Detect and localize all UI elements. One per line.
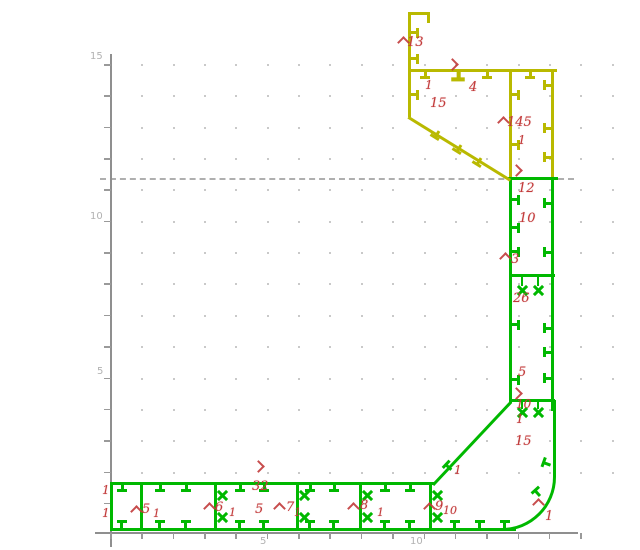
grid-dot xyxy=(580,283,582,285)
grid-dot xyxy=(361,346,363,348)
grid-dot xyxy=(424,95,426,97)
grid-dot xyxy=(455,315,457,317)
annotation-arrow-right xyxy=(252,460,265,473)
grid-dot xyxy=(392,378,394,380)
annotation-number: 3 xyxy=(511,253,519,266)
grid-dot xyxy=(486,315,488,317)
x-axis-tick xyxy=(329,533,331,539)
grid-dot xyxy=(329,440,331,442)
grid-dot xyxy=(173,440,175,442)
grid-dot xyxy=(204,283,206,285)
stiffener-tick xyxy=(511,195,521,205)
grid-dot xyxy=(267,189,269,191)
cross-symbol xyxy=(532,406,545,419)
grid-dot xyxy=(204,221,206,223)
grid-dot xyxy=(204,95,206,97)
stiffener-tick xyxy=(380,483,390,493)
grid-dot xyxy=(392,315,394,317)
grid-dot xyxy=(580,472,582,474)
stiffener-tick xyxy=(500,519,510,529)
tick-cap xyxy=(525,76,535,79)
annotation-number: 10 xyxy=(516,398,531,410)
stiffener-tick xyxy=(405,483,415,493)
grid-dot xyxy=(518,64,520,66)
grid-dot xyxy=(267,221,269,223)
tick-cap xyxy=(500,521,510,524)
grid-dot xyxy=(612,346,614,348)
grid-dot xyxy=(298,158,300,160)
grid-dot xyxy=(361,189,363,191)
grid-dot xyxy=(173,409,175,411)
tick-cap xyxy=(544,323,547,333)
x-axis-tick xyxy=(392,533,394,539)
stiffener-tick xyxy=(117,519,127,529)
annotation-number: 145 xyxy=(507,116,532,129)
tick-cap xyxy=(380,521,390,524)
waterline-dashed-line xyxy=(100,178,574,180)
stiffener-tick xyxy=(525,70,535,80)
grid-dot xyxy=(235,283,237,285)
grid-dot xyxy=(173,252,175,254)
tick-cap xyxy=(117,521,127,524)
grid-dot xyxy=(329,127,331,129)
y-axis-tick xyxy=(104,409,111,411)
annotation-number: 5 xyxy=(255,503,263,516)
tick-cap xyxy=(235,489,245,492)
grid-dot xyxy=(612,189,614,191)
grid-dot xyxy=(329,346,331,348)
grid-dot xyxy=(141,440,143,442)
grid-dot xyxy=(173,189,175,191)
grid-dot xyxy=(612,95,614,97)
tick-cap xyxy=(329,489,339,492)
tick-cap xyxy=(235,521,245,524)
annotation-number: 1 xyxy=(518,134,526,146)
annotation-number: 1 xyxy=(545,510,553,523)
stiffener-tick xyxy=(380,519,390,529)
grid-dot xyxy=(424,315,426,317)
grid-dot xyxy=(549,64,551,66)
grid-dot xyxy=(204,409,206,411)
x-axis-tick xyxy=(518,533,520,539)
grid-dot xyxy=(580,409,582,411)
grid-dot xyxy=(455,252,457,254)
grid-dot xyxy=(267,346,269,348)
x-axis-tick xyxy=(141,533,143,539)
grid-dot xyxy=(392,252,394,254)
grid-dot xyxy=(580,127,582,129)
tick-cap xyxy=(380,489,390,492)
grid-dot xyxy=(580,252,582,254)
grid-dot xyxy=(361,315,363,317)
grid-dot xyxy=(424,409,426,411)
grid-dot xyxy=(392,346,394,348)
grid-dot xyxy=(392,440,394,442)
grid-dot xyxy=(612,283,614,285)
grid-dot xyxy=(580,189,582,191)
x-axis-tick xyxy=(549,533,551,539)
grid-dot xyxy=(204,378,206,380)
grid-dot xyxy=(235,378,237,380)
tick-cap xyxy=(544,347,547,357)
y-axis-tick xyxy=(104,127,111,129)
stiffener-tick xyxy=(235,519,245,529)
stiffener-tick xyxy=(450,519,460,529)
stiffener-tick xyxy=(542,123,552,133)
y-axis-tick xyxy=(104,221,111,223)
grid-dot xyxy=(612,221,614,223)
grid-dot xyxy=(204,440,206,442)
grid-dot xyxy=(204,472,206,474)
y-axis-tick xyxy=(104,64,111,66)
y-axis-tick xyxy=(104,315,111,317)
cross-symbol xyxy=(298,489,311,502)
annotation-number: 1 xyxy=(516,413,524,425)
grid-dot xyxy=(392,409,394,411)
grid-dot xyxy=(173,472,175,474)
tick-cap xyxy=(517,90,520,100)
annotation-arrow-up xyxy=(347,502,360,515)
y-axis-tick xyxy=(104,440,111,442)
grid-dot xyxy=(486,252,488,254)
grid-dot xyxy=(580,158,582,160)
stiffener-tick xyxy=(511,320,521,330)
annotation-number: 6 xyxy=(215,501,223,514)
stiffener-tick xyxy=(410,54,420,64)
stiffener-tick xyxy=(181,519,191,529)
grid-dot xyxy=(486,221,488,223)
grid-dot xyxy=(173,283,175,285)
grid-dot xyxy=(486,64,488,66)
grid-dot xyxy=(361,221,363,223)
grid-dot xyxy=(141,64,143,66)
structure-plate xyxy=(110,482,113,531)
tick-cap xyxy=(329,521,339,524)
grid-dot xyxy=(612,158,614,160)
grid-dot xyxy=(329,252,331,254)
grid-dot xyxy=(267,409,269,411)
grid-dot xyxy=(267,158,269,160)
tick-cap xyxy=(117,489,127,492)
grid-dot xyxy=(392,64,394,66)
tick-cap xyxy=(544,373,547,383)
grid-dot xyxy=(455,221,457,223)
grid-dot xyxy=(298,127,300,129)
grid-dot xyxy=(392,472,394,474)
grid-dot xyxy=(361,440,363,442)
annotation-number: 10 xyxy=(443,505,457,516)
y-axis-tick xyxy=(104,472,111,474)
x-axis-tick xyxy=(424,533,426,539)
x-axis-tick xyxy=(173,533,175,539)
structure-plate xyxy=(427,12,430,23)
grid-dot xyxy=(329,378,331,380)
grid-dot xyxy=(298,221,300,223)
y-axis-tick xyxy=(104,378,111,380)
grid-dot xyxy=(486,189,488,191)
annotation-number: 1 xyxy=(102,507,110,519)
grid-dot xyxy=(141,158,143,160)
grid-dot xyxy=(486,283,488,285)
tick-cap xyxy=(544,80,547,90)
tick-cap xyxy=(544,123,547,133)
grid-dot xyxy=(392,95,394,97)
y-axis-tick xyxy=(104,283,111,285)
grid-dot xyxy=(329,283,331,285)
x-axis-tick xyxy=(235,533,237,539)
grid-dot xyxy=(267,378,269,380)
grid-dot xyxy=(298,252,300,254)
stiffener-tick xyxy=(542,80,552,90)
grid-dot xyxy=(424,346,426,348)
grid-dot xyxy=(612,409,614,411)
grid-dot xyxy=(612,315,614,317)
grid-dot xyxy=(298,283,300,285)
tick-cap xyxy=(544,247,547,257)
stiffener-tick xyxy=(155,519,165,529)
grid-dot xyxy=(235,221,237,223)
grid-dot xyxy=(612,472,614,474)
grid-dot xyxy=(329,315,331,317)
tick-cap xyxy=(544,198,547,208)
annotation-number: 15 xyxy=(430,97,447,110)
grid-dot xyxy=(173,64,175,66)
grid-dot xyxy=(518,158,520,160)
grid-dot xyxy=(612,64,614,66)
annotation-arrow-up xyxy=(273,502,286,515)
grid-dot xyxy=(580,346,582,348)
grid-dot xyxy=(173,378,175,380)
stiffener-tick xyxy=(117,483,127,493)
grid-dot xyxy=(173,95,175,97)
grid-dot xyxy=(580,315,582,317)
grid-dot xyxy=(298,315,300,317)
grid-dot xyxy=(424,283,426,285)
grid-dot xyxy=(141,283,143,285)
grid-dot xyxy=(424,221,426,223)
grid-dot xyxy=(298,346,300,348)
grid-dot xyxy=(298,189,300,191)
stiffener-tick xyxy=(482,70,492,80)
annotation-number: 5 xyxy=(142,503,150,516)
grid-dot xyxy=(173,346,175,348)
grid-dot xyxy=(361,378,363,380)
grid-dot xyxy=(329,158,331,160)
grid-dot xyxy=(267,64,269,66)
x-axis-tick xyxy=(298,533,300,539)
annotation-number: 1 xyxy=(425,79,433,91)
grid-dot xyxy=(455,378,457,380)
tick-cap xyxy=(482,76,492,79)
grid-dot xyxy=(173,315,175,317)
grid-dot xyxy=(392,283,394,285)
tick-cap xyxy=(544,152,547,162)
grid-dot xyxy=(235,409,237,411)
grid-dot xyxy=(518,315,520,317)
grid-dot xyxy=(173,158,175,160)
stiffener-tick xyxy=(542,347,552,357)
grid-dot xyxy=(361,158,363,160)
grid-dot xyxy=(298,64,300,66)
grid-dot xyxy=(267,95,269,97)
grid-dot xyxy=(455,189,457,191)
tick-cap xyxy=(181,489,191,492)
grid-dot xyxy=(392,221,394,223)
grid-dot xyxy=(486,95,488,97)
y-axis-label: 5 xyxy=(97,366,103,377)
grid-dot xyxy=(141,409,143,411)
grid-dot xyxy=(580,64,582,66)
grid-dot xyxy=(392,158,394,160)
grid-dot xyxy=(267,127,269,129)
stiffener-tick xyxy=(329,519,339,529)
section-drawing: 1510551013141514511210326510115111516132… xyxy=(0,0,640,550)
grid-dot xyxy=(486,378,488,380)
x-axis-label: 5 xyxy=(260,536,266,547)
grid-dot xyxy=(235,189,237,191)
tick-cap xyxy=(475,521,485,524)
grid-dot xyxy=(141,127,143,129)
stiffener-tick xyxy=(542,323,552,333)
grid-dot xyxy=(392,189,394,191)
grid-dot xyxy=(455,158,457,160)
grid-dot xyxy=(141,221,143,223)
annotation-number: 1 xyxy=(377,507,384,518)
x-axis-tick xyxy=(110,533,112,539)
grid-dot xyxy=(204,189,206,191)
grid-dot xyxy=(486,346,488,348)
grid-dot xyxy=(267,283,269,285)
y-axis-label: 10 xyxy=(90,211,103,222)
tick-cap xyxy=(450,521,460,524)
grid-dot xyxy=(235,315,237,317)
grid-dot xyxy=(204,315,206,317)
cad-viewport[interactable]: 1510551013141514511210326510115111516132… xyxy=(0,0,640,550)
grid-dot xyxy=(204,252,206,254)
grid-dot xyxy=(235,440,237,442)
grid-dot xyxy=(612,440,614,442)
x-axis-tick xyxy=(455,533,457,539)
annotation-number: 5 xyxy=(518,366,526,379)
grid-dot xyxy=(141,252,143,254)
stiffener-tick xyxy=(542,198,552,208)
tick-cap xyxy=(259,521,269,524)
grid-dot xyxy=(580,378,582,380)
grid-dot xyxy=(361,95,363,97)
grid-dot xyxy=(298,440,300,442)
grid-dot xyxy=(204,127,206,129)
stiffener-tick xyxy=(410,90,420,100)
grid-dot xyxy=(204,158,206,160)
annotation-number: 10 xyxy=(519,212,536,225)
grid-dot xyxy=(486,158,488,160)
stiffener-tick xyxy=(542,247,552,257)
grid-dot xyxy=(267,252,269,254)
x-axis-line xyxy=(95,532,578,534)
grid-dot xyxy=(141,472,143,474)
stiffener-tick xyxy=(451,69,465,83)
grid-dot xyxy=(141,315,143,317)
tick-cap xyxy=(155,521,165,524)
stiffener-tick xyxy=(181,483,191,493)
annotation-number: 8 xyxy=(360,499,368,512)
grid-dot xyxy=(580,95,582,97)
grid-dot xyxy=(329,64,331,66)
annotation-number: 4 xyxy=(469,81,477,94)
grid-dot xyxy=(235,127,237,129)
stiffener-tick xyxy=(329,483,339,493)
grid-dot xyxy=(298,472,300,474)
grid-dot xyxy=(392,127,394,129)
structure-plate xyxy=(509,179,512,403)
stiffener-tick xyxy=(542,152,552,162)
x-axis-tick xyxy=(267,533,269,539)
annotation-number: 1 xyxy=(454,464,462,476)
grid-dot xyxy=(235,252,237,254)
tick-cap xyxy=(451,77,465,80)
tick-cap xyxy=(416,90,419,100)
grid-dot xyxy=(361,252,363,254)
grid-dot xyxy=(204,346,206,348)
annotation-number: 12 xyxy=(518,182,535,195)
grid-dot xyxy=(298,378,300,380)
grid-dot xyxy=(267,472,269,474)
annotation-number: 32 xyxy=(252,480,269,493)
grid-dot xyxy=(361,409,363,411)
grid-dot xyxy=(267,440,269,442)
grid-dot xyxy=(424,472,426,474)
structure-plate xyxy=(509,274,555,277)
grid-dot xyxy=(424,158,426,160)
stiffener-tick xyxy=(259,519,269,529)
annotation-number: 26 xyxy=(513,292,530,305)
grid-dot xyxy=(455,127,457,129)
grid-dot xyxy=(298,95,300,97)
annotation-number: 15 xyxy=(515,435,532,448)
grid-dot xyxy=(329,189,331,191)
tick-cap xyxy=(405,489,415,492)
grid-dot xyxy=(141,189,143,191)
x-axis-tick xyxy=(580,533,582,539)
grid-dot xyxy=(612,378,614,380)
grid-dot xyxy=(235,95,237,97)
y-axis-tick xyxy=(104,95,111,97)
grid-dot xyxy=(612,127,614,129)
stiffener-tick xyxy=(542,373,552,383)
grid-dot xyxy=(361,64,363,66)
grid-dot xyxy=(455,346,457,348)
grid-dot xyxy=(204,64,206,66)
grid-dot xyxy=(329,95,331,97)
grid-dot xyxy=(141,346,143,348)
grid-dot xyxy=(424,64,426,66)
grid-dot xyxy=(235,64,237,66)
grid-dot xyxy=(329,221,331,223)
grid-dot xyxy=(486,127,488,129)
y-axis-tick xyxy=(104,158,111,160)
stiffener-tick xyxy=(475,519,485,529)
y-axis-label: 15 xyxy=(90,51,103,62)
grid-dot xyxy=(361,127,363,129)
grid-dot xyxy=(141,95,143,97)
grid-dot xyxy=(173,221,175,223)
grid-dot xyxy=(298,409,300,411)
grid-dot xyxy=(235,158,237,160)
tick-cap xyxy=(517,320,520,330)
y-axis-tick xyxy=(104,252,111,254)
annotation-arrow-right xyxy=(510,164,523,177)
grid-dot xyxy=(612,252,614,254)
